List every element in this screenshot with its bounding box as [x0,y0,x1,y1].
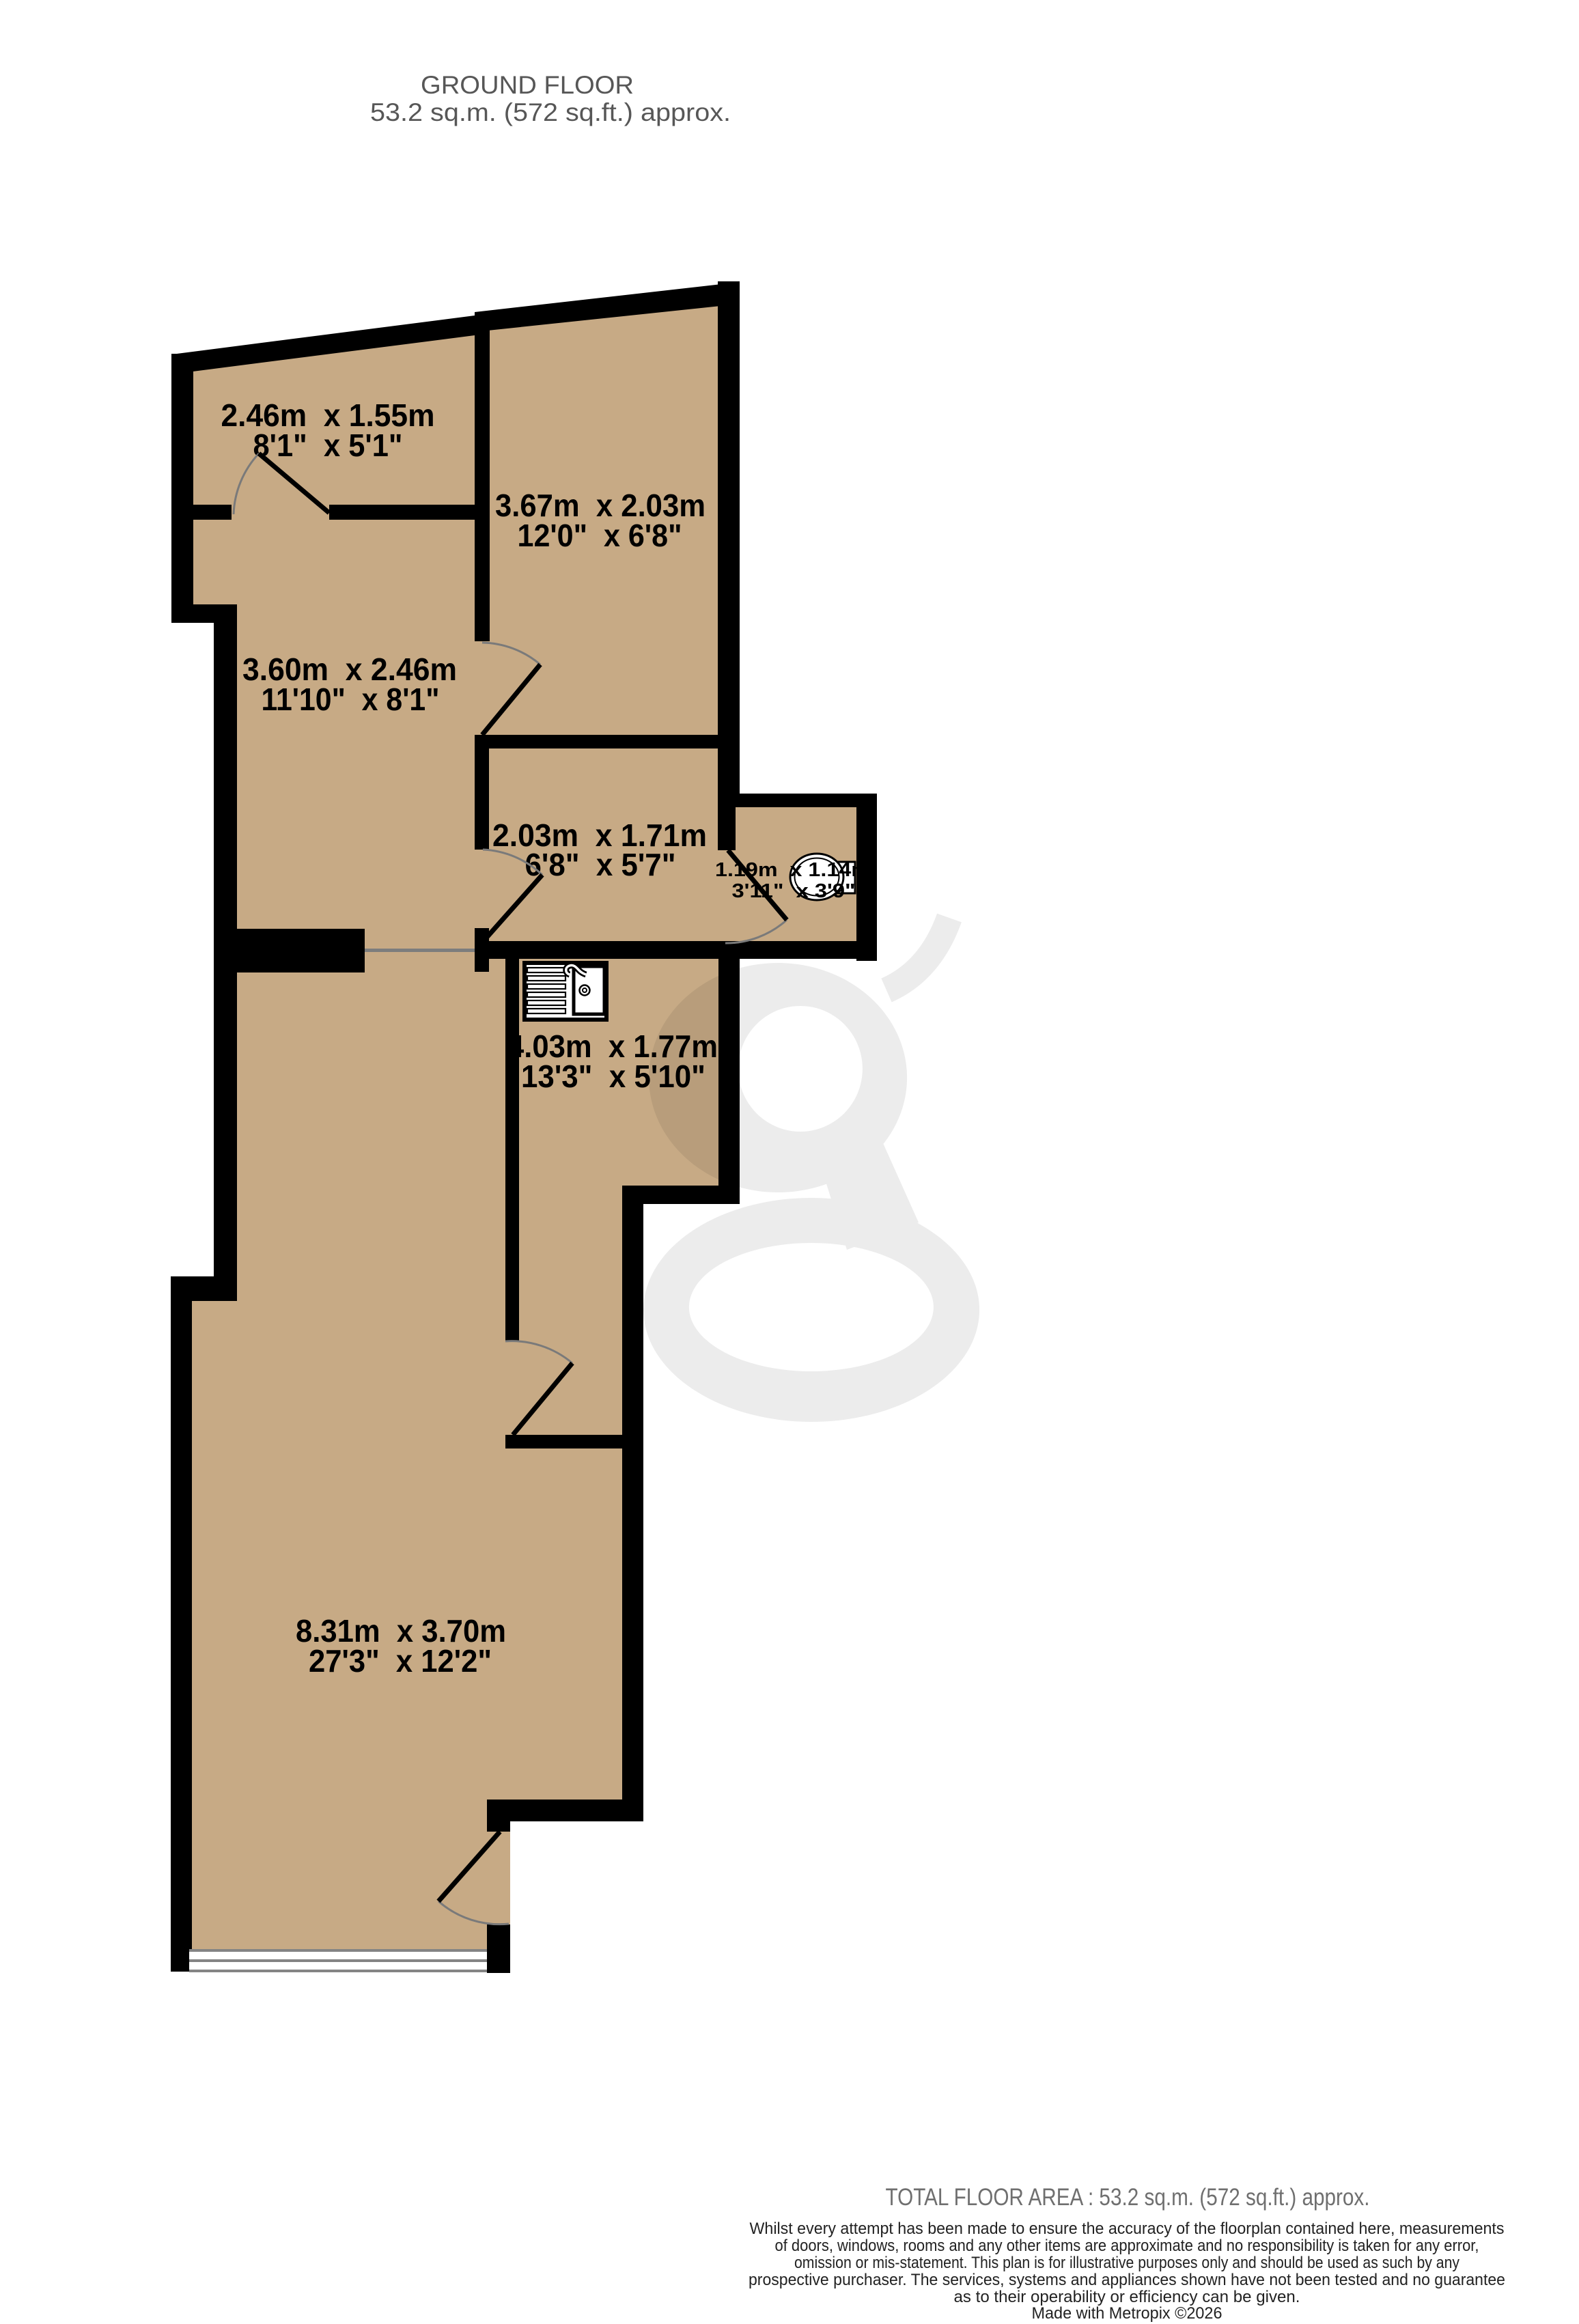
svg-text:as to their operability or eff: as to their operability or efficiency ca… [954,2288,1300,2306]
svg-text:53.2 sq.m. (572 sq.ft.) approx: 53.2 sq.m. (572 sq.ft.) approx. [370,98,731,126]
svg-text:Whilst every attempt has been: Whilst every attempt has been made to en… [750,2220,1505,2238]
svg-text:11'10" x 8'1": 11'10" x 8'1" [262,682,440,717]
svg-text:GROUND FLOOR: GROUND FLOOR [421,71,634,99]
svg-text:Made with Metropix ©2026: Made with Metropix ©2026 [1032,2304,1222,2323]
svg-text:omission or mis-statement. Thi: omission or mis-statement. This plan is … [794,2254,1459,2272]
svg-text:6'8" x 5'7": 6'8" x 5'7" [525,847,676,882]
svg-text:8'1" x 5'1": 8'1" x 5'1" [253,428,403,463]
svg-text:TOTAL FLOOR AREA : 53.2 sq.m.: TOTAL FLOOR AREA : 53.2 sq.m. (572 sq.ft… [886,2184,1370,2211]
svg-text:3'11" x 3'9": 3'11" x 3'9" [732,880,856,902]
svg-text:27'3" x 12'2": 27'3" x 12'2" [309,1643,492,1679]
svg-text:of doors, windows, rooms and a: of doors, windows, rooms and any other i… [775,2237,1479,2255]
svg-text:12'0" x 6'8": 12'0" x 6'8" [518,518,682,553]
svg-text:prospective purchaser. The ser: prospective purchaser. The services, sys… [749,2271,1505,2289]
